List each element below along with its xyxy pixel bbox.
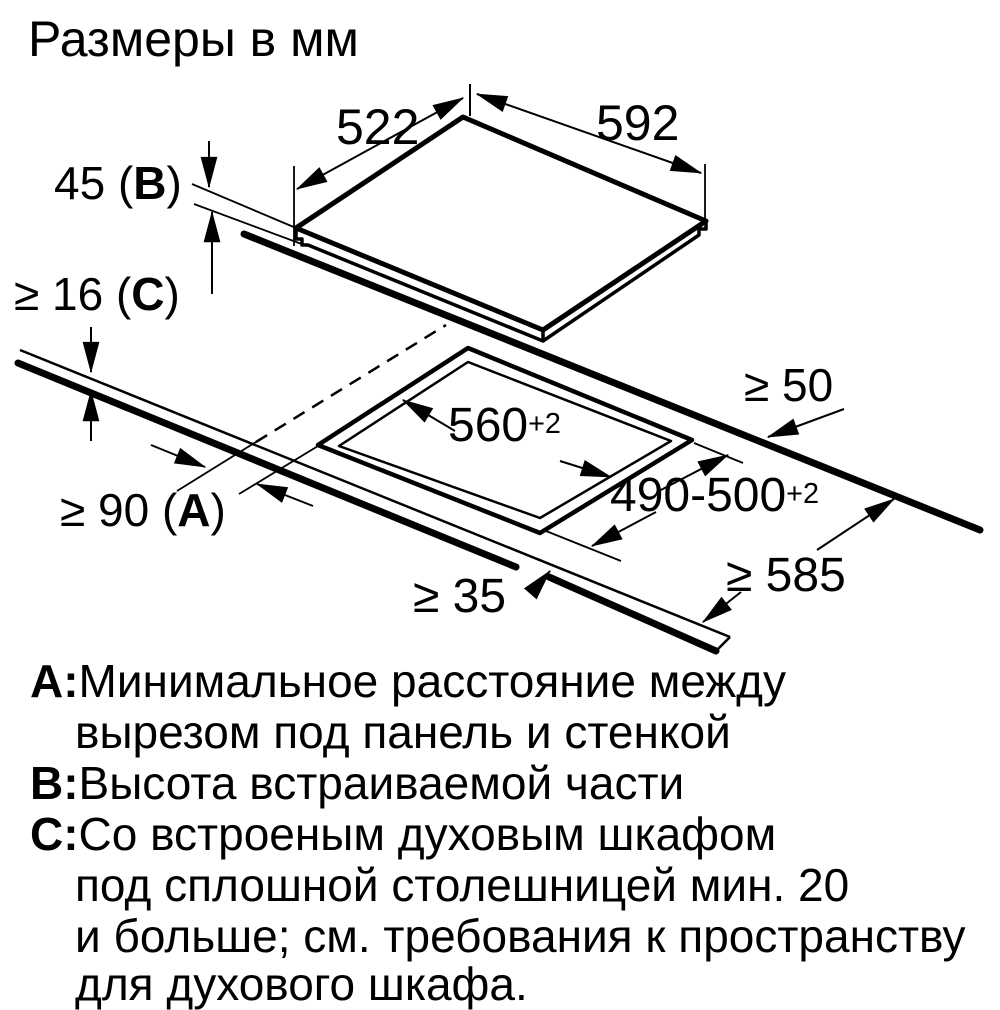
dimension-560-label: 560+2 [448,402,561,450]
installation-diagram: Размеры в мм 522 592 45 (B) ≥ 16 (C) ≥ 5… [0,0,1000,1000]
legend-letter-a: А: [30,658,79,704]
dimension-16-label: ≥ 16 (C) [14,271,180,317]
legend-item-c-line4: для духового шкафа. [75,961,528,1007]
legend-item-a-line1: А:Минимальное расстояние между [30,658,786,704]
dimension-35-lines [531,571,550,593]
legend-item-c-line2: под сплошной столешницей мин. 20 [75,862,849,908]
dimension-45-lines [192,141,307,294]
dimension-522-label: 522 [336,102,419,152]
dimension-490-500-label: 490-500+2 [610,472,819,520]
dimension-50-lines [768,409,844,437]
dimension-90-label: ≥ 90 (A) [60,487,226,533]
dimension-592-label: 592 [596,98,679,148]
legend-letter-b: В: [30,760,79,806]
legend-item-a-line2: вырезом под панель и стенкой [75,709,731,755]
legend-item-c-line1: С:Со встроеным духовым шкафом [30,811,776,857]
legend-item-c-line3: и больше; см. требования к пространству [75,913,966,959]
dimension-585-label: ≥ 585 [726,552,846,600]
diagram-title: Размеры в мм [28,14,359,64]
legend-item-b-line1: В:Высота встраиваемой части [30,760,684,806]
legend-letter-c: С: [30,811,79,857]
dimension-35-label: ≥ 35 [413,573,506,621]
dimension-45-label: 45 (B) [54,160,182,206]
dimension-50-label: ≥ 50 [744,362,833,408]
